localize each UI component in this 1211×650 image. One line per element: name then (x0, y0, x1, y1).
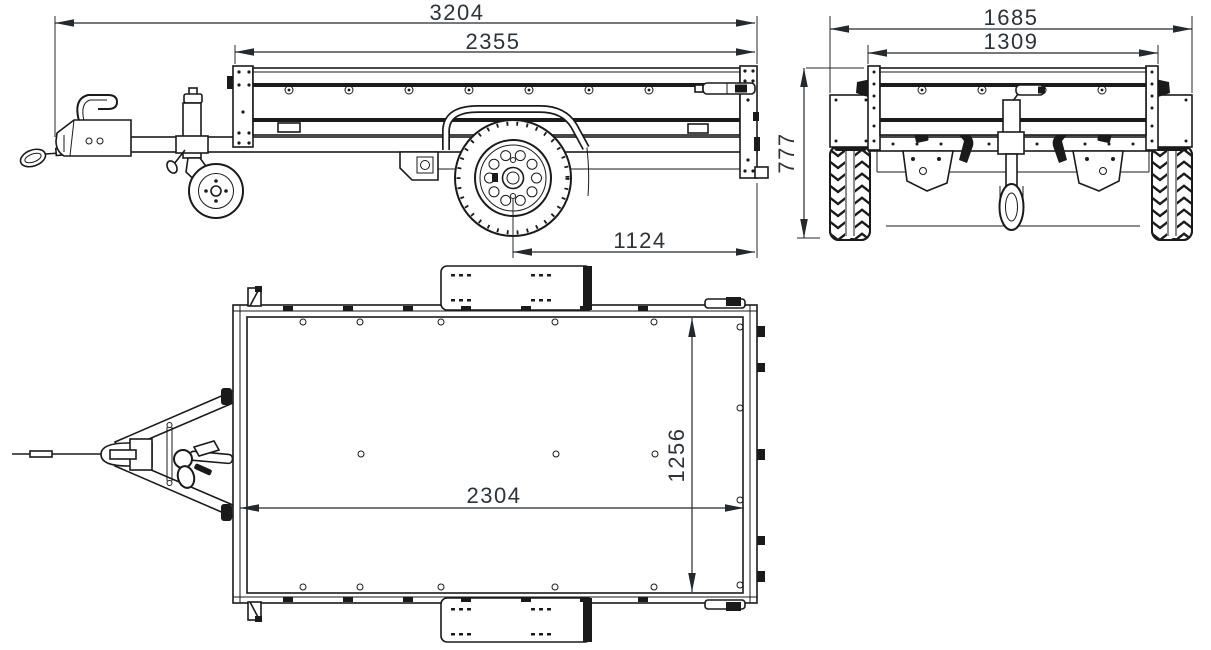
hitch-coupling (18, 95, 131, 170)
end-view: 1685 1309 777 (774, 5, 1192, 240)
dim-overall-height-label: 777 (774, 132, 799, 173)
trailer-orthographic-drawing: 3204 2355 1124 (0, 0, 1211, 650)
mudguard-top-lower (441, 598, 592, 642)
axle-support (903, 151, 953, 191)
corner-latch-top-left (248, 286, 262, 306)
dim-overall-width-label: 1685 (984, 5, 1039, 30)
left-tire (830, 146, 870, 240)
drawbar-top (12, 388, 233, 521)
corner-latch-bottom-left (248, 602, 262, 622)
corner-latch-top-right (705, 297, 745, 308)
corner-latch-bottom-right (705, 600, 745, 611)
axle-support (1073, 151, 1123, 191)
dim-bed-inner-length-label: 2304 (467, 483, 522, 508)
coupling-head (56, 120, 131, 156)
dim-bed-inner-width-label: 1256 (664, 428, 689, 483)
front-board-latch (221, 388, 232, 405)
right-tire (1152, 146, 1192, 240)
dim-box-width: 1309 (868, 29, 1158, 64)
dim-box-length: 2355 (235, 29, 755, 64)
clamp-lever (165, 159, 179, 175)
dim-box-length-label: 2355 (466, 29, 521, 54)
technical-drawing-page: 3204 2355 1124 (0, 0, 1211, 650)
dim-overall-length-label: 3204 (430, 0, 485, 25)
dim-box-width-label: 1309 (984, 29, 1039, 54)
dim-axle-to-rear-label: 1124 (613, 228, 666, 253)
tailgate-hinges (757, 326, 765, 582)
jockey-clamp (176, 136, 208, 153)
jockey-wheel-top (174, 441, 233, 490)
top-view: 2304 1256 (12, 266, 765, 642)
front-board-latch (221, 504, 232, 521)
hub (503, 168, 524, 189)
axle-bracket (400, 152, 438, 180)
mudguard-top-upper (441, 266, 592, 310)
jockey-wheel-side (165, 88, 243, 218)
front-post (233, 66, 253, 147)
breakaway-cable-loop (18, 146, 48, 170)
side-view: 3204 2355 1124 (18, 0, 768, 258)
tail-lamp-bar (695, 83, 755, 94)
